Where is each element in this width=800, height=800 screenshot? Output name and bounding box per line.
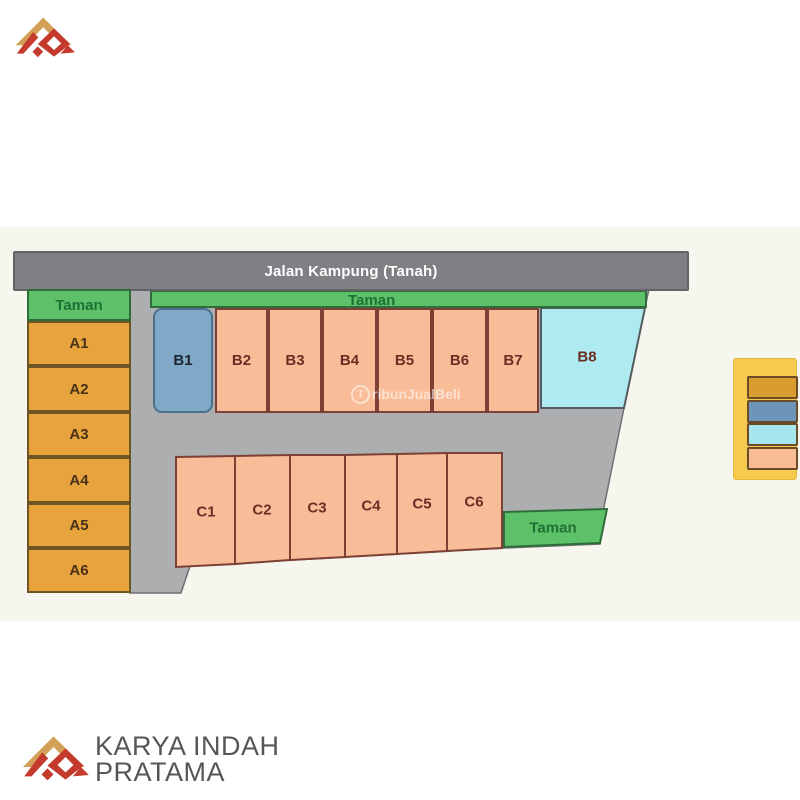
company-name-line2: PRATAMA — [95, 759, 280, 785]
watermark-text: ribunJualBeli — [372, 386, 461, 402]
plot-a6: A6 — [27, 548, 131, 593]
company-name: KARYA INDAH PRATAMA — [95, 733, 280, 785]
plot-b3-label: B3 — [285, 352, 304, 369]
taman-c-row-label: Taman — [529, 520, 576, 537]
plot-a5: A5 — [27, 503, 131, 548]
plot-a3-label: A3 — [69, 426, 88, 443]
company-logo-icon-top — [15, 16, 75, 60]
road-bar: Jalan Kampung (Tanah) — [13, 251, 689, 291]
taman-top-left: Taman — [27, 289, 131, 321]
company-logo-icon — [22, 735, 89, 783]
plot-a4-label: A4 — [69, 472, 88, 489]
legend-panel — [733, 358, 797, 480]
plot-c1-label: C1 — [196, 504, 215, 521]
plot-c4-label: C4 — [361, 498, 380, 515]
plot-b8-label: B8 — [577, 349, 596, 366]
road-label: Jalan Kampung (Tanah) — [264, 263, 437, 280]
legend-swatch-blue — [747, 400, 798, 423]
plot-b4-label: B4 — [340, 352, 359, 369]
legend-swatch-cyan — [747, 423, 798, 446]
watermark: TribunJualBeli — [351, 385, 461, 403]
plot-b7: B7 — [487, 308, 539, 413]
plot-b3: B3 — [268, 308, 322, 413]
legend-swatch-gold — [747, 376, 798, 399]
plot-c5-label: C5 — [412, 496, 431, 513]
plot-a3: A3 — [27, 412, 131, 457]
plot-b7-label: B7 — [503, 352, 522, 369]
plot-a1-label: A1 — [69, 335, 88, 352]
plot-b2-label: B2 — [232, 352, 251, 369]
plot-b1: B1 — [153, 308, 213, 413]
plot-a2: A2 — [27, 366, 131, 412]
taman-top-left-label: Taman — [55, 297, 102, 314]
site-plan-page: Jalan Kampung (Tanah) Taman Taman A1 A2 … — [0, 0, 800, 800]
plot-c6-label: C6 — [464, 494, 483, 511]
plot-b5-label: B5 — [395, 352, 414, 369]
plot-c3-label: C3 — [307, 500, 326, 517]
plot-b2: B2 — [215, 308, 268, 413]
plot-c2-label: C2 — [252, 502, 271, 519]
company-name-line1: KARYA INDAH — [95, 733, 280, 759]
plot-a1: A1 — [27, 321, 131, 366]
plot-a5-label: A5 — [69, 517, 88, 534]
plot-b6-label: B6 — [450, 352, 469, 369]
plot-a4: A4 — [27, 457, 131, 503]
taman-b-row: Taman — [150, 291, 647, 308]
legend-swatch-peach — [747, 447, 798, 470]
plot-a6-label: A6 — [69, 562, 88, 579]
watermark-logo-icon: T — [351, 385, 370, 404]
taman-b-row-label: Taman — [348, 292, 395, 309]
plot-b1-label: B1 — [173, 352, 192, 369]
plot-a2-label: A2 — [69, 381, 88, 398]
